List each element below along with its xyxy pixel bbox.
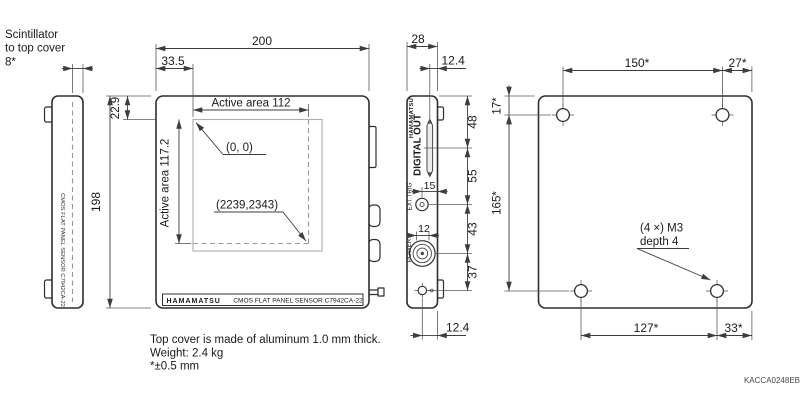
dim-hole-top-offset-label: 17* xyxy=(492,97,504,115)
origin-label: (0, 0) xyxy=(226,142,253,154)
back-view-body xyxy=(539,96,753,308)
side-spacing-dimensions: 48 55 43 37 xyxy=(466,96,480,291)
scintillator-note-line1: Scintillator xyxy=(5,29,58,41)
scintillator-note-line3: 8* xyxy=(5,57,16,69)
note-line2: Weight: 2.4 kg xyxy=(150,348,223,360)
front-power-edge-connector xyxy=(369,240,381,262)
dim-hole-edge-top: 27* xyxy=(728,56,746,70)
drawing-canvas: CMOS FLAT PANEL SENSOR C7942CA-22 Scinti… xyxy=(0,0,804,400)
dim-height-198: 198 xyxy=(89,192,103,212)
dim-spacing-48: 48 xyxy=(466,115,480,129)
technical-drawing-page: CMOS FLAT PANEL SENSOR C7942CA-22 Scinti… xyxy=(0,0,804,400)
front-ext-trig-edge-connector xyxy=(369,205,381,227)
dim-active-area-height: Active area 117.2 xyxy=(160,139,172,228)
hole-note-line1: (4 ×) M3 xyxy=(640,223,683,235)
left-view-panel-text: CMOS FLAT PANEL SENSOR C7942CA-22 xyxy=(59,193,65,307)
front-view: Active area 112 Active area 117.2 (0, 0)… xyxy=(156,34,384,308)
note-line1: Top cover is made of aluminum 1.0 mm thi… xyxy=(150,334,381,346)
dim-side-width: 28 xyxy=(411,32,425,46)
dim-front-width: 200 xyxy=(252,34,272,48)
dim-active-area-width: Active area 112 xyxy=(211,98,290,110)
dim-hole-span-bottom: 127* xyxy=(634,321,659,335)
dim-scintillator-to-cover xyxy=(62,64,93,93)
front-model-label: CMOS FLAT PANEL SENSOR C7942CA-22 xyxy=(233,298,363,305)
ext-trig-label: EXT.TRIG xyxy=(407,182,414,210)
side-connector-view: HAMAMATSU DIGITAL OUT 28 12.4 xyxy=(406,32,480,340)
drawing-notes: Top cover is made of aluminum 1.0 mm thi… xyxy=(150,334,381,373)
dim-active-top-offset: 22.9 xyxy=(110,97,122,119)
left-view-body xyxy=(52,96,83,308)
ext-trig-connector xyxy=(416,198,428,210)
dim-spacing-43: 43 xyxy=(466,222,480,236)
dim-spacing-55: 55 xyxy=(466,169,480,183)
digital-out-label: DIGITAL OUT xyxy=(413,114,424,176)
dim-power-diameter-label: 12 xyxy=(418,223,430,235)
dim-spacing-37: 37 xyxy=(466,265,480,279)
front-indicator-pin-stem xyxy=(369,290,379,295)
power-label: POWER xyxy=(406,238,413,262)
document-number: KACCA0248EB xyxy=(744,376,800,385)
dim-side-top-offset: 12.4 xyxy=(420,54,467,69)
dim-hole-edge-bottom: 33* xyxy=(724,321,742,335)
note-line3: *±0.5 mm xyxy=(150,361,199,373)
scintillator-note-line2: to top cover xyxy=(5,43,65,55)
front-indicator-pin-head xyxy=(378,288,384,296)
hole-note-line2: depth 4 xyxy=(640,236,679,248)
hamamatsu-logo: HAMAMATSU xyxy=(167,298,221,305)
dim-hole-span-top: 150* xyxy=(625,56,650,70)
left-profile-view: CMOS FLAT PANEL SENSOR C7942CA-22 Scinti… xyxy=(5,29,93,308)
dim-side-top-offset-label: 12.4 xyxy=(442,54,466,68)
dim-active-left-offset: 33.5 xyxy=(161,54,185,68)
power-connector-pin xyxy=(421,252,424,255)
dim-hole-span-vertical-label: 165* xyxy=(492,191,504,215)
back-mounting-view: 150* 27* 17* 165* (4 ×) M3 depth 4 xyxy=(492,56,753,340)
far-corner-label: (2239,2343) xyxy=(216,200,278,212)
dim-side-bottom-offset-label: 12.4 xyxy=(446,321,470,335)
dim-trig-offset-label: 15 xyxy=(424,180,436,192)
